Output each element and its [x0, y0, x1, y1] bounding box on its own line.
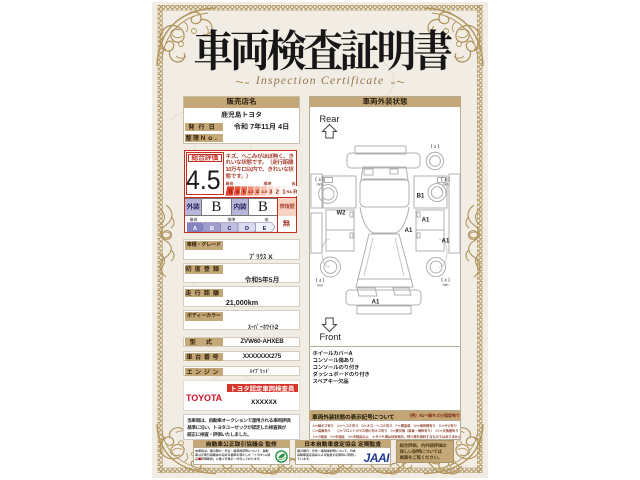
svg-text:3.5: 3.5	[261, 189, 267, 194]
svg-text:RA: RA	[286, 190, 292, 194]
svg-text:A1: A1	[372, 300, 380, 306]
svg-text:4.5: 4.5	[248, 189, 254, 194]
svg-text:〔 1 〕: 〔 1 〕	[428, 144, 442, 150]
svg-text:C: C	[227, 225, 231, 231]
svg-text:2: 2	[275, 190, 278, 196]
svg-text:S: S	[228, 190, 232, 196]
svg-text:R: R	[293, 190, 298, 196]
svg-text:B1: B1	[417, 194, 425, 200]
svg-text:mm: mm	[317, 284, 323, 289]
svg-text:B: B	[210, 225, 214, 231]
svg-text:E: E	[262, 225, 266, 231]
svg-text:A1: A1	[422, 218, 430, 224]
svg-text:mm: mm	[317, 183, 323, 188]
svg-text:mm: mm	[443, 183, 449, 188]
svg-text:A1: A1	[405, 228, 413, 234]
svg-text:D: D	[245, 225, 249, 231]
svg-text:A1: A1	[442, 239, 450, 245]
svg-text:A: A	[193, 225, 197, 231]
svg-text:W2: W2	[337, 211, 347, 217]
svg-text:mm: mm	[443, 283, 449, 288]
